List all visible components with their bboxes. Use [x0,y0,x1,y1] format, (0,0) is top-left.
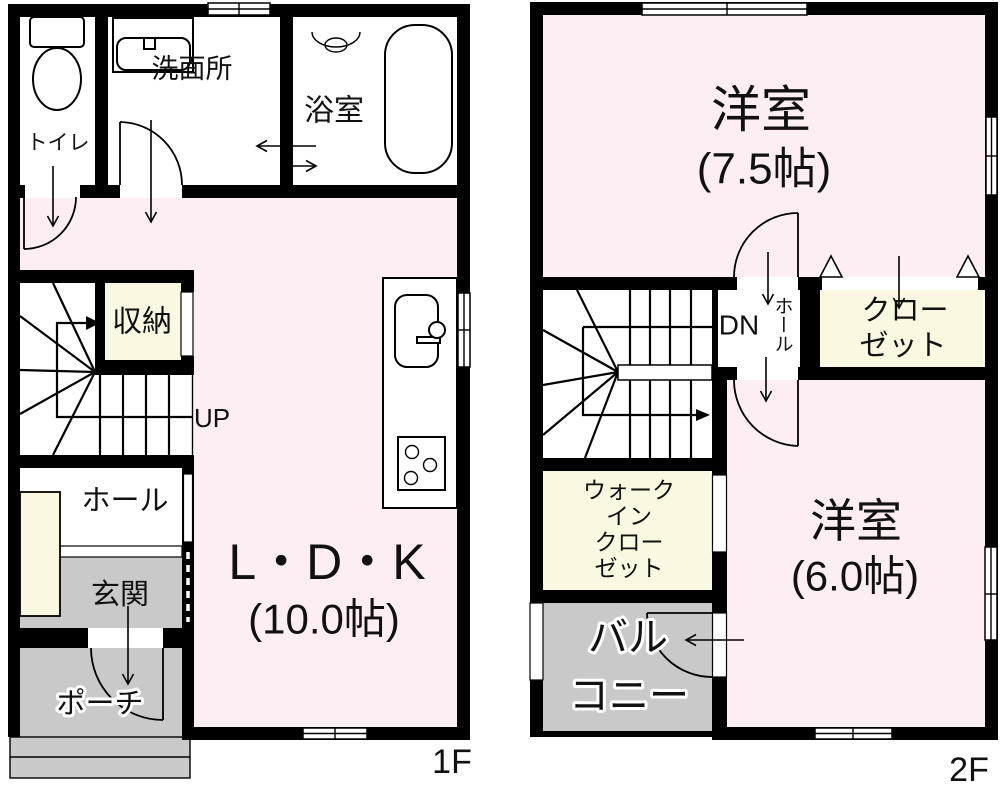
stairs-2f [543,290,712,458]
label-floor-1f: 1F [432,743,472,781]
window-top-1f [208,3,270,15]
label-porch: ポーチ [56,687,143,720]
label-wic-line3: クロー [595,529,664,555]
label-hall-1f: ホール [81,485,168,517]
window-kitchen [458,293,470,367]
label-hall-2f: ホール [772,296,793,353]
stairs-divider [618,365,712,380]
floor-plan-svg: トイレ 洗面所 浴室 収納 UP ホール 玄関 ポーチ L・D・K (10.0帖… [0,0,1000,806]
storage-door [181,292,193,356]
entrance-step [58,546,182,557]
label-floor-2f: 2F [949,751,989,789]
window-top-2f [642,3,807,15]
stairs-dn-arrowhead [696,409,710,421]
floor-plan-2f: 洋室 (7.5帖) DN ホール クロー ゼット ウォーク イン クロー ゼット… [530,2,998,789]
label-west-room-large: 洋室 [711,82,811,138]
label-storage: 収納 [112,306,172,339]
label-entrance: 玄関 [91,578,149,611]
label-wic-line4: ゼット [595,555,664,581]
shoe-cabinet [20,492,60,616]
label-wic-line2: イン [606,503,652,529]
label-west-room-small: 洋室 [810,495,902,547]
window-bottom-1f [303,728,367,739]
label-west-room-large-size: (7.5帖) [697,145,831,194]
label-stairs-up: UP [194,403,230,433]
hall-ldk-opening [184,474,193,542]
label-washroom: 洗面所 [152,54,233,84]
label-ldk: L・D・K [228,534,425,590]
window-right-west-large [986,117,997,195]
label-balcony-line2: コニー [569,674,689,718]
window-right-west-small [985,547,997,640]
window-bottom-west-small [815,728,892,739]
label-bathroom: 浴室 [304,95,364,128]
toilet-fixture-icon [30,17,84,110]
kitchen-counter-icon [383,278,457,508]
floor-plan-image: トイレ 洗面所 浴室 収納 UP ホール 玄関 ポーチ L・D・K (10.0帖… [0,0,1000,806]
label-stairs-dn: DN [719,310,759,341]
label-west-room-small-size: (6.0帖) [791,553,919,600]
label-ldk-size: (10.0帖) [248,596,400,643]
label-closet-line1: クロー [861,295,948,327]
label-toilet: トイレ [27,132,90,155]
label-wic-line1: ウォーク [583,477,675,503]
wic-door-opening [713,475,727,552]
label-balcony-line1: バル [588,616,668,660]
balcony-side-window [530,603,543,680]
balcony-door-opening [713,613,727,677]
label-closet-line2: ゼット [859,329,946,362]
floor-plan-1f: トイレ 洗面所 浴室 収納 UP ホール 玄関 ポーチ L・D・K (10.0帖… [8,3,472,781]
porch-steps [10,737,190,778]
